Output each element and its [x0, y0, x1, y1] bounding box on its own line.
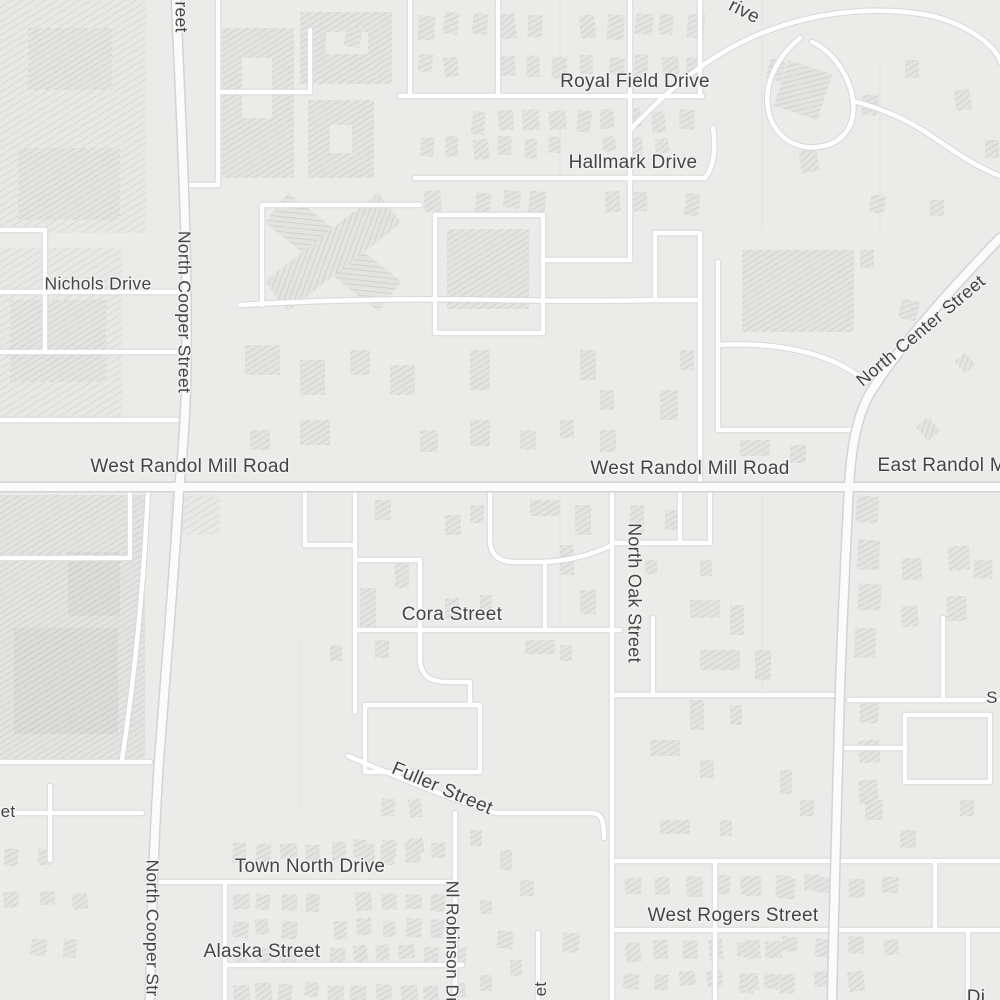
map-viewport[interactable]: Royal Field Drive Hallmark Drive Nichols…: [0, 0, 1000, 1000]
map-canvas: [0, 0, 1000, 1000]
